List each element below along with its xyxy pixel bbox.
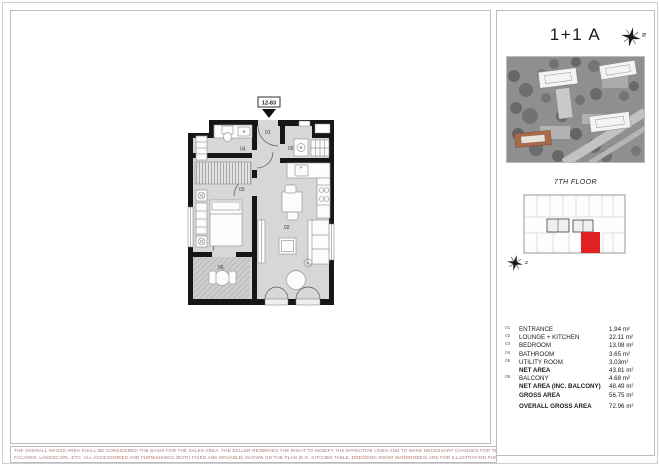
area-table: 01 ENTRANCE 1.94 m² 02 LOUNGE + KITCHEN … [497, 326, 654, 411]
row-value: 13.08 m² [609, 342, 633, 349]
floorplan-sheet: 12-83 [0, 0, 660, 466]
table-row: 06 BALCONY 4.68 m² [497, 375, 654, 383]
row-label: OVERALL GROSS AREA [519, 403, 592, 410]
table-row-overall-gross-area: OVERALL GROSS AREA 72.96 m² [497, 403, 654, 411]
row-label: BATHROOM [519, 351, 554, 358]
highlighted-building [514, 130, 551, 147]
row-number: 01 [505, 326, 510, 331]
entrance-direction-icon [262, 109, 276, 118]
row-number: 04 [505, 351, 510, 356]
row-label: NET AREA [519, 367, 550, 374]
floor-label: 7TH FLOOR [497, 179, 654, 186]
row-value: 72.96 m² [609, 403, 633, 410]
room-label-entrance: 01 [265, 130, 271, 136]
disclaimer-line-1: THE OVERALL GROSS AREA SHALL BE CONSIDER… [14, 448, 493, 455]
row-number: 03 [505, 342, 510, 347]
unit-code-label: 12-83 [262, 101, 276, 107]
room-label-utility: 05 [288, 146, 294, 152]
table-row-net-area-inc-balcony: NET AREA (INC. BALCONY) 48.49 m² [497, 383, 654, 391]
row-number: 02 [505, 334, 510, 339]
highlighted-unit [581, 232, 600, 253]
table-row: 05 UTILITY ROOM 3.03m² [497, 359, 654, 367]
row-value: 43.81 m² [609, 367, 633, 374]
table-row-gross-area: GROSS AREA 56.75 m² [497, 392, 654, 400]
row-label: UTILITY ROOM [519, 359, 563, 366]
table-row: 01 ENTRANCE 1.94 m² [497, 326, 654, 334]
table-row: 02 LOUNGE + KITCHEN 22.11 m² [497, 334, 654, 342]
row-value: 48.49 m² [609, 383, 633, 390]
table-row: 03 BEDROOM 13.08 m² [497, 342, 654, 350]
room-label-bathroom: 04 [240, 147, 246, 153]
north-compass-icon: N [616, 23, 646, 51]
row-value: 3.03m² [609, 359, 628, 366]
row-label: BALCONY [519, 375, 549, 382]
row-label: GROSS AREA [519, 392, 560, 399]
row-value: 4.68 m² [609, 375, 630, 382]
row-label: LOUNGE + KITCHEN [519, 334, 579, 341]
vent-box [299, 121, 310, 126]
north-compass-icon-keyplan: N [507, 254, 529, 273]
room-label-lounge-kitchen: 02 [284, 225, 290, 231]
room-label-bedroom: 03 [239, 187, 245, 193]
table-row-net-area: NET AREA 43.81 m² [497, 367, 654, 375]
disclaimer: THE OVERALL GROSS AREA SHALL BE CONSIDER… [10, 446, 497, 463]
row-number: 05 [505, 359, 510, 364]
aerial-site-photo [506, 56, 645, 163]
floorplate-keyplan: N [507, 191, 642, 287]
row-value: 56.75 m² [609, 392, 633, 399]
table-row: 04 BATHROOM 3.65 m² [497, 351, 654, 359]
row-label: ENTRANCE [519, 326, 553, 333]
room-label-balcony: 06 [218, 265, 224, 271]
row-label: BEDROOM [519, 342, 551, 349]
apartment-floor-plan: 12-83 [185, 93, 337, 310]
north-letter-keyplan: N [524, 261, 529, 264]
row-value: 1.94 m² [609, 326, 630, 333]
info-sidebar: 1+1 A N [496, 10, 655, 456]
row-value: 3.65 m² [609, 351, 630, 358]
shaft-box [315, 124, 330, 133]
north-letter: N [640, 33, 646, 37]
disclaimer-line-2: FACADES, LANDSCAPE, ETC. ALL ACCESSORIES… [14, 455, 493, 462]
row-value: 22.11 m² [609, 334, 633, 341]
row-number: 06 [505, 375, 510, 380]
row-label: NET AREA (INC. BALCONY) [519, 383, 601, 390]
